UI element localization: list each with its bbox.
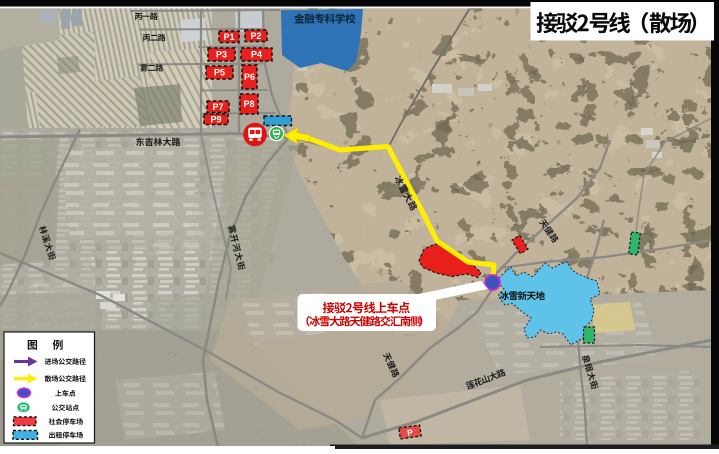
svg-text:P5: P5 <box>214 68 225 78</box>
svg-text:P3: P3 <box>216 50 227 60</box>
svg-text:P1: P1 <box>223 32 234 42</box>
svg-text:P7: P7 <box>212 102 223 112</box>
svg-text:P6: P6 <box>244 72 255 82</box>
svg-text:P9: P9 <box>210 114 221 124</box>
svg-text:P4: P4 <box>251 50 262 60</box>
svg-text:P8: P8 <box>243 99 254 109</box>
svg-text:P2: P2 <box>250 31 261 41</box>
